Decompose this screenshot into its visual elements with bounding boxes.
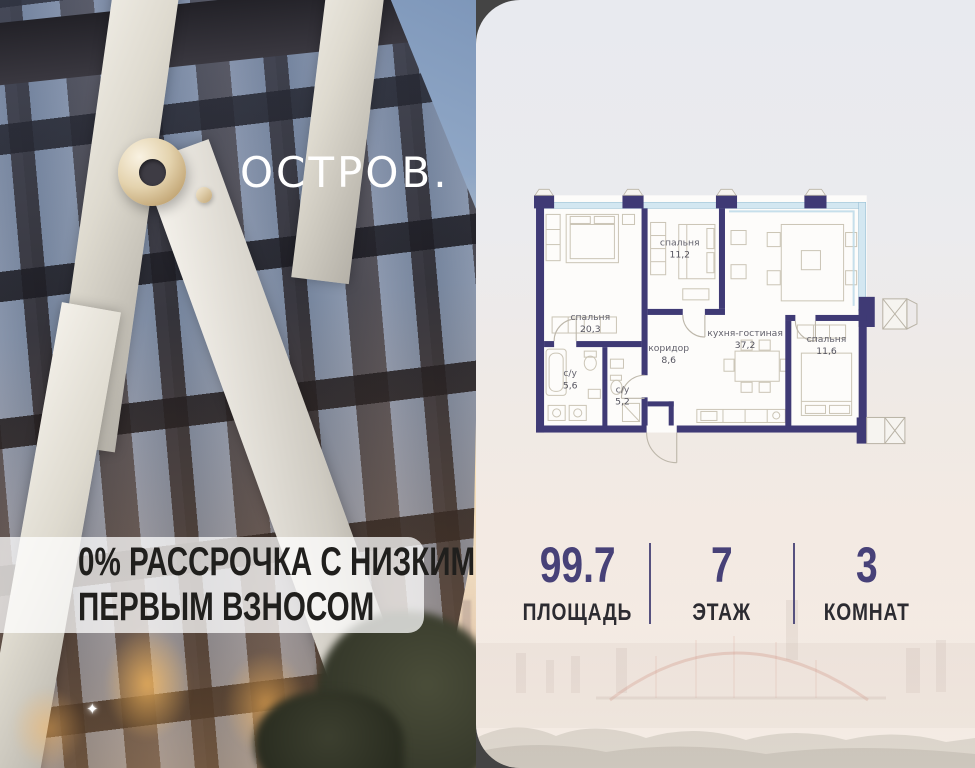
ad-flyer: ✦ ОСТРОВ. 0% РАССРОЧКА С НИЗКИМ ПЕРВЫМ В… [0,0,975,768]
promo-line-2: ПЕРВЫМ ВЗНОСОМ [78,585,334,630]
logo-wordmark: ОСТРОВ. [240,148,450,197]
room-label-bathroom-2: с/у [616,384,630,395]
logo-ring-icon [118,138,186,206]
lit-window-glow [105,628,190,740]
stat-floor-label: ЭТАЖ [693,599,752,627]
logo-dot-icon [196,187,212,203]
sparkle-icon: ✦ [86,700,99,718]
room-area-bathroom-1: 5,6 [563,380,578,391]
info-panel: спальня 20,3 спальня 11,2 кухня-гостиная… [476,0,975,768]
building-photo: ✦ ОСТРОВ. 0% РАССРОЧКА С НИЗКИМ ПЕРВЫМ В… [0,0,476,768]
stat-area-label: ПЛОЩАДЬ [523,599,632,627]
room-label-corridor: коридор [648,343,689,354]
stat-floor-value: 7 [711,540,733,590]
room-label-kitchen-living: кухня-гостиная [707,328,783,339]
room-label-bathroom-1: с/у [563,368,577,379]
floor-plan-svg: спальня 20,3 спальня 11,2 кухня-гостиная… [532,188,924,466]
room-area-bedroom-large: 20,3 [580,324,601,335]
entrance-door-arc [647,433,677,463]
stat-area-value: 99.7 [539,540,615,590]
room-label-bedroom-right: спальня [807,334,847,345]
room-area-bedroom-right: 11,6 [816,346,837,357]
room-area-bathroom-2: 5,2 [615,396,630,407]
promo-line-1: 0% РАССРОЧКА С НИЗКИМ [78,540,334,585]
stat-rooms-value: 3 [856,540,878,590]
room-area-kitchen-living: 37,2 [735,340,756,351]
stat-rooms-label: КОМНАТ [824,599,910,627]
promo-banner: 0% РАССРОЧКА С НИЗКИМ ПЕРВЫМ ВЗНОСОМ [0,537,424,633]
pilaster-caps [535,189,825,195]
room-area-corridor: 8,6 [661,355,676,366]
room-label-bedroom-large: спальня [570,312,610,323]
room-label-bedroom-top: спальня [660,238,700,249]
brand-logo: ОСТРОВ. [118,138,450,206]
apartment-stats: 99.7 ПЛОЩАДЬ 7 ЭТАЖ 3 КОМНАТ [506,540,938,627]
stat-rooms: 3 КОМНАТ [795,540,938,627]
lit-window-glow [12,688,84,768]
room-area-bedroom-top: 11,2 [669,250,690,261]
stat-area: 99.7 ПЛОЩАДЬ [506,540,649,627]
stat-floor: 7 ЭТАЖ [651,540,794,627]
